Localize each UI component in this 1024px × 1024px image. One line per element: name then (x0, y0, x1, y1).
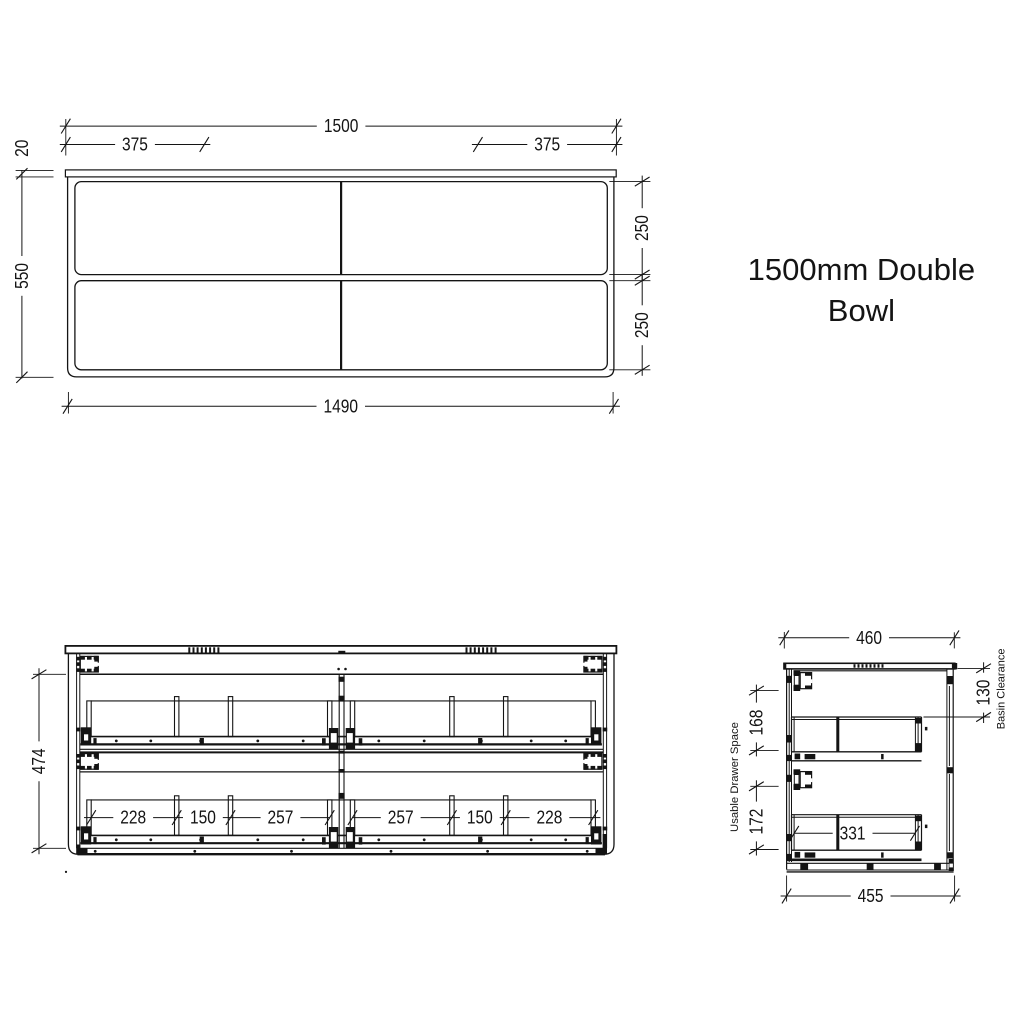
svg-text:331: 331 (840, 823, 866, 843)
svg-text:130: 130 (974, 680, 994, 706)
svg-text:460: 460 (856, 628, 882, 648)
svg-text:150: 150 (190, 808, 216, 828)
svg-text:1500mm Double: 1500mm Double (748, 252, 975, 287)
svg-text:550: 550 (12, 263, 32, 289)
svg-text:375: 375 (122, 135, 148, 155)
svg-text:172: 172 (746, 809, 766, 835)
svg-text:257: 257 (388, 808, 414, 828)
svg-text:250: 250 (632, 215, 652, 241)
svg-text:1490: 1490 (324, 396, 359, 416)
svg-text:Bowl: Bowl (828, 293, 895, 328)
svg-text:1500: 1500 (324, 116, 359, 136)
svg-text:250: 250 (632, 312, 652, 338)
svg-text:257: 257 (268, 808, 294, 828)
svg-text:455: 455 (858, 886, 884, 906)
svg-text:228: 228 (536, 808, 562, 828)
svg-text:168: 168 (746, 710, 766, 736)
svg-text:228: 228 (120, 808, 146, 828)
svg-text:375: 375 (534, 135, 560, 155)
svg-text:150: 150 (467, 808, 493, 828)
svg-text:474: 474 (29, 748, 49, 774)
svg-text:Basin Clearance: Basin Clearance (995, 649, 1007, 730)
svg-text:Usable Drawer Space: Usable Drawer Space (729, 722, 741, 832)
svg-text:20: 20 (12, 140, 32, 157)
